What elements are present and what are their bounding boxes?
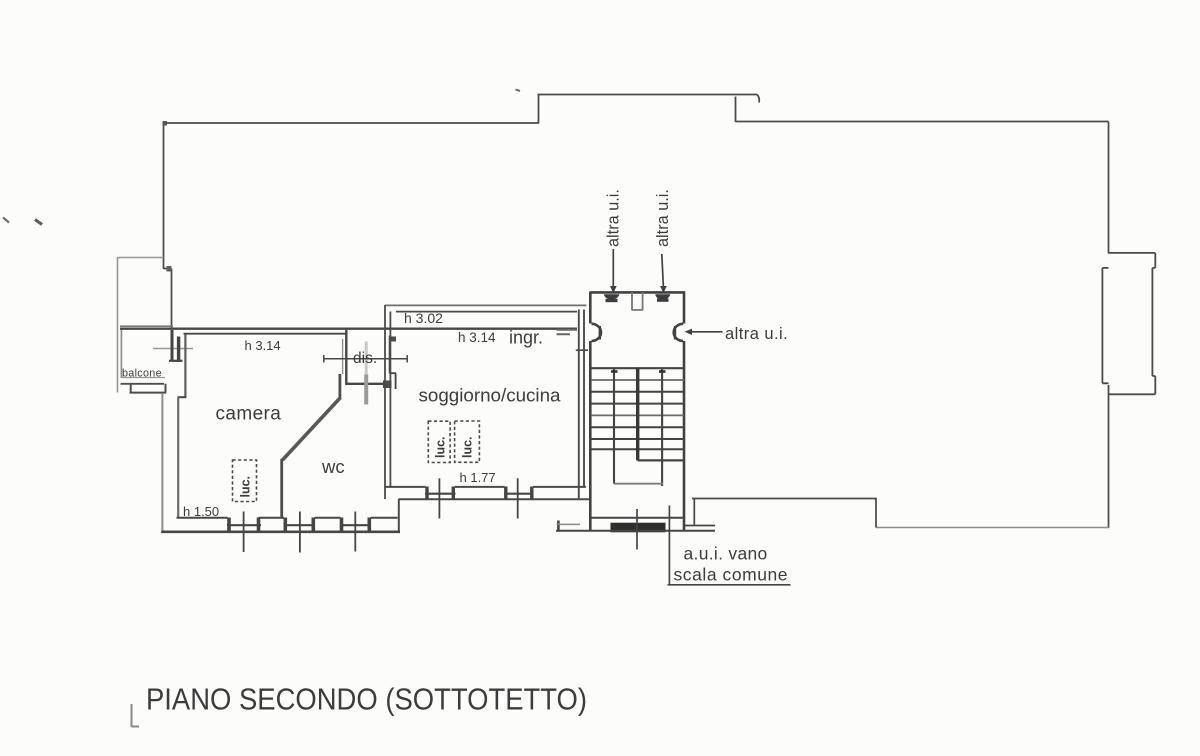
svg-text:h 3.14: h 3.14 [245,338,281,353]
svg-text:camera: camera [216,404,282,425]
svg-text:wc: wc [321,456,345,477]
svg-text:balcone: balcone [122,367,162,379]
svg-text:h 3.02: h 3.02 [404,310,443,326]
svg-text:altra u.i.: altra u.i. [725,325,788,343]
svg-text:luc.: luc. [461,436,475,458]
svg-text:soggiorno/cucina: soggiorno/cucina [419,384,562,405]
svg-text:luc.: luc. [239,476,253,498]
svg-text:h 3.14: h 3.14 [458,330,496,345]
svg-text:dis.: dis. [353,350,377,367]
svg-text:h 1.50: h 1.50 [183,504,219,519]
svg-text:altra u.i.: altra u.i. [654,189,672,247]
svg-text:luc.: luc. [434,436,448,458]
svg-text:scala comune: scala comune [674,565,789,585]
svg-text:h 1.77: h 1.77 [460,470,496,485]
svg-text:a.u.i. vano: a.u.i. vano [684,544,768,564]
svg-text:PIANO SECONDO (SOTTOTETTO): PIANO SECONDO (SOTTOTETTO) [146,682,587,717]
svg-text:altra u.i.: altra u.i. [605,189,623,247]
svg-text:ingr.: ingr. [509,328,543,348]
